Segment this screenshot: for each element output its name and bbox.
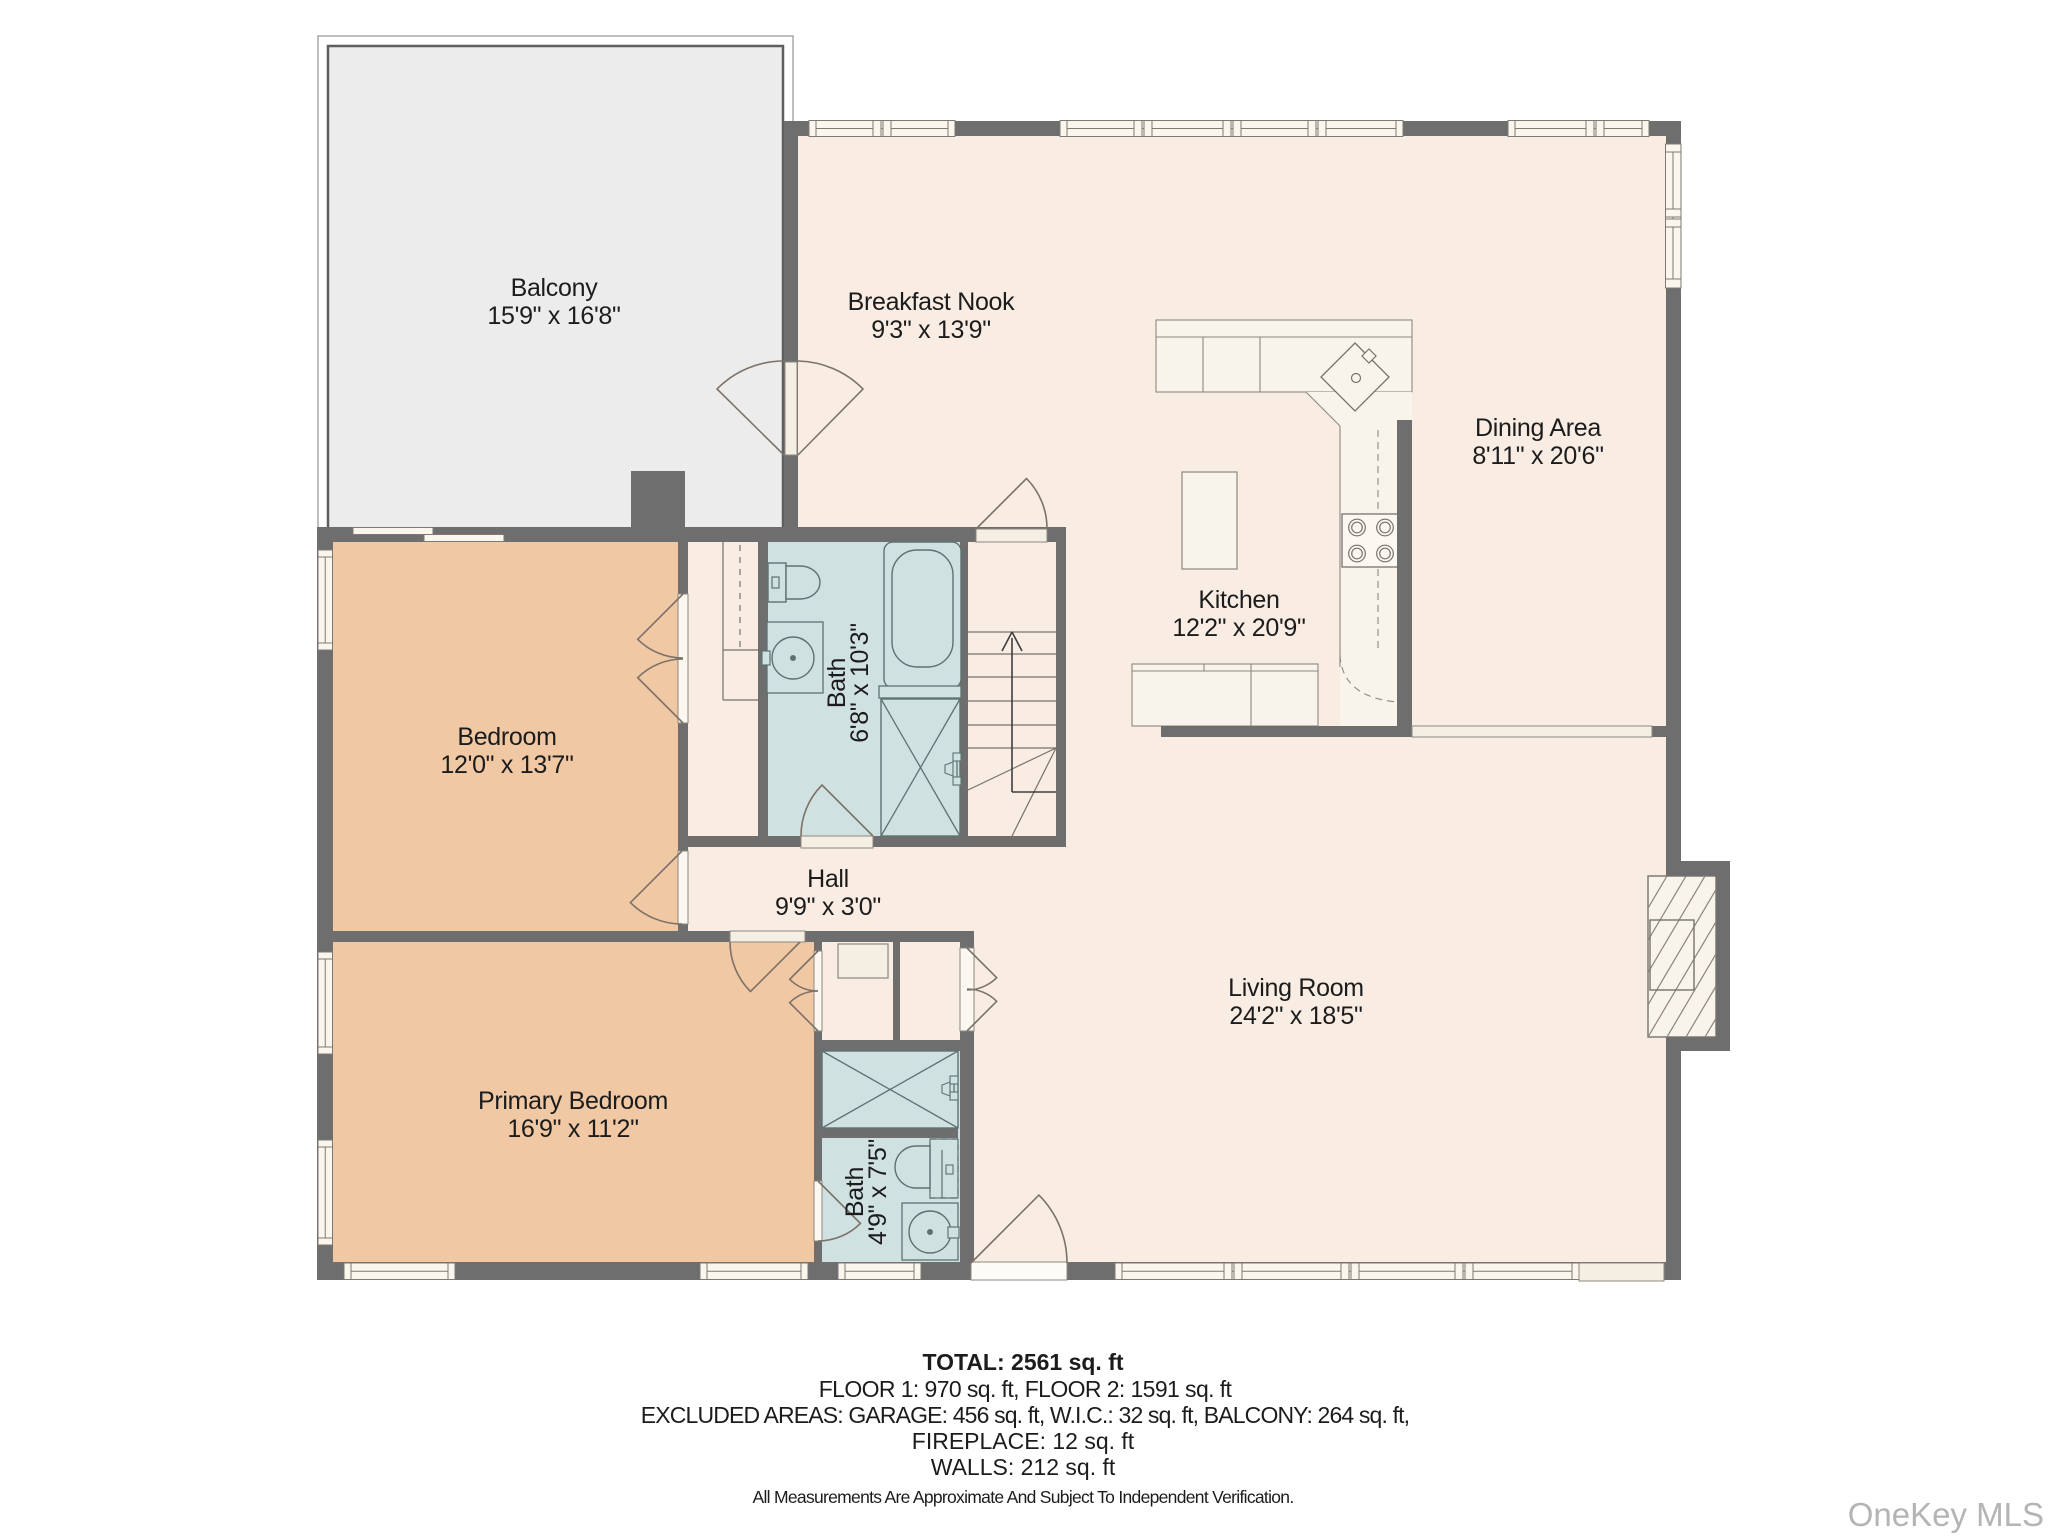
- svg-text:Bedroom: Bedroom: [457, 723, 556, 751]
- svg-text:Kitchen: Kitchen: [1198, 586, 1279, 614]
- svg-text:6'8" x 10'3": 6'8" x 10'3": [846, 623, 874, 743]
- svg-text:Primary Bedroom: Primary Bedroom: [478, 1087, 668, 1115]
- svg-text:12'0" x 13'7": 12'0" x 13'7": [440, 751, 573, 779]
- svg-text:Living Room: Living Room: [1228, 974, 1364, 1002]
- svg-text:TOTAL: 2561 sq. ft: TOTAL: 2561 sq. ft: [922, 1349, 1123, 1375]
- svg-text:9'9" x 3'0": 9'9" x 3'0": [775, 893, 881, 921]
- svg-text:All Measurements Are Approxima: All Measurements Are Approximate And Sub…: [752, 1487, 1293, 1507]
- svg-text:OneKey MLS: OneKey MLS: [1848, 1496, 2044, 1533]
- svg-text:4'9" x 7'5": 4'9" x 7'5": [864, 1139, 892, 1245]
- svg-text:FIREPLACE: 12 sq. ft: FIREPLACE: 12 sq. ft: [912, 1428, 1135, 1454]
- svg-text:24'2" x 18'5": 24'2" x 18'5": [1229, 1002, 1362, 1030]
- svg-text:Hall: Hall: [807, 865, 849, 893]
- svg-text:Balcony: Balcony: [511, 274, 599, 302]
- svg-text:FLOOR 1: 970 sq. ft, FLOOR 2:: FLOOR 1: 970 sq. ft, FLOOR 2: 1591 sq. f…: [819, 1376, 1233, 1402]
- svg-text:15'9" x 16'8": 15'9" x 16'8": [487, 302, 620, 330]
- svg-text:12'2" x 20'9": 12'2" x 20'9": [1172, 614, 1305, 642]
- svg-text:16'9" x 11'2": 16'9" x 11'2": [507, 1115, 638, 1143]
- svg-text:WALLS: 212 sq. ft: WALLS: 212 sq. ft: [931, 1454, 1116, 1480]
- svg-text:8'11" x 20'6": 8'11" x 20'6": [1472, 442, 1603, 470]
- svg-text:Dining Area: Dining Area: [1475, 414, 1601, 442]
- svg-text:Breakfast Nook: Breakfast Nook: [848, 288, 1016, 316]
- svg-text:EXCLUDED AREAS: GARAGE: 456 sq: EXCLUDED AREAS: GARAGE: 456 sq. ft, W.I.…: [641, 1402, 1409, 1428]
- svg-text:9'3" x 13'9": 9'3" x 13'9": [871, 316, 991, 344]
